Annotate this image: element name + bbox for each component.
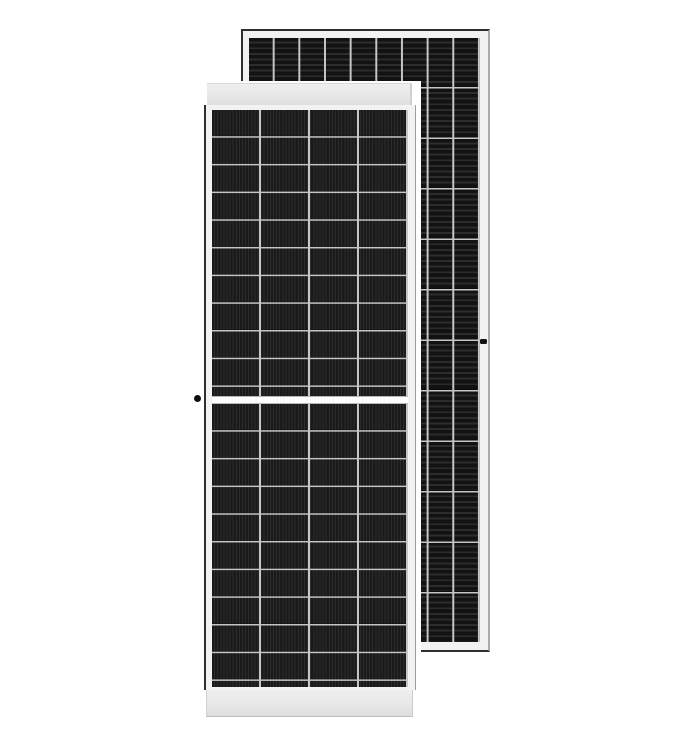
rear-panel-grounding-hole <box>480 339 487 344</box>
front-panel-frame <box>204 105 416 690</box>
front-panel-grounding-hole <box>194 395 201 402</box>
front-solar-panel <box>199 81 421 722</box>
front-panel-bottom-rail <box>206 690 413 717</box>
front-panel-cells-bottom-half <box>212 404 408 687</box>
front-panel-cell-grid <box>212 110 408 687</box>
front-panel-center-divider <box>212 396 408 404</box>
product-image <box>0 0 684 748</box>
front-panel-cells-top-half <box>212 110 408 397</box>
